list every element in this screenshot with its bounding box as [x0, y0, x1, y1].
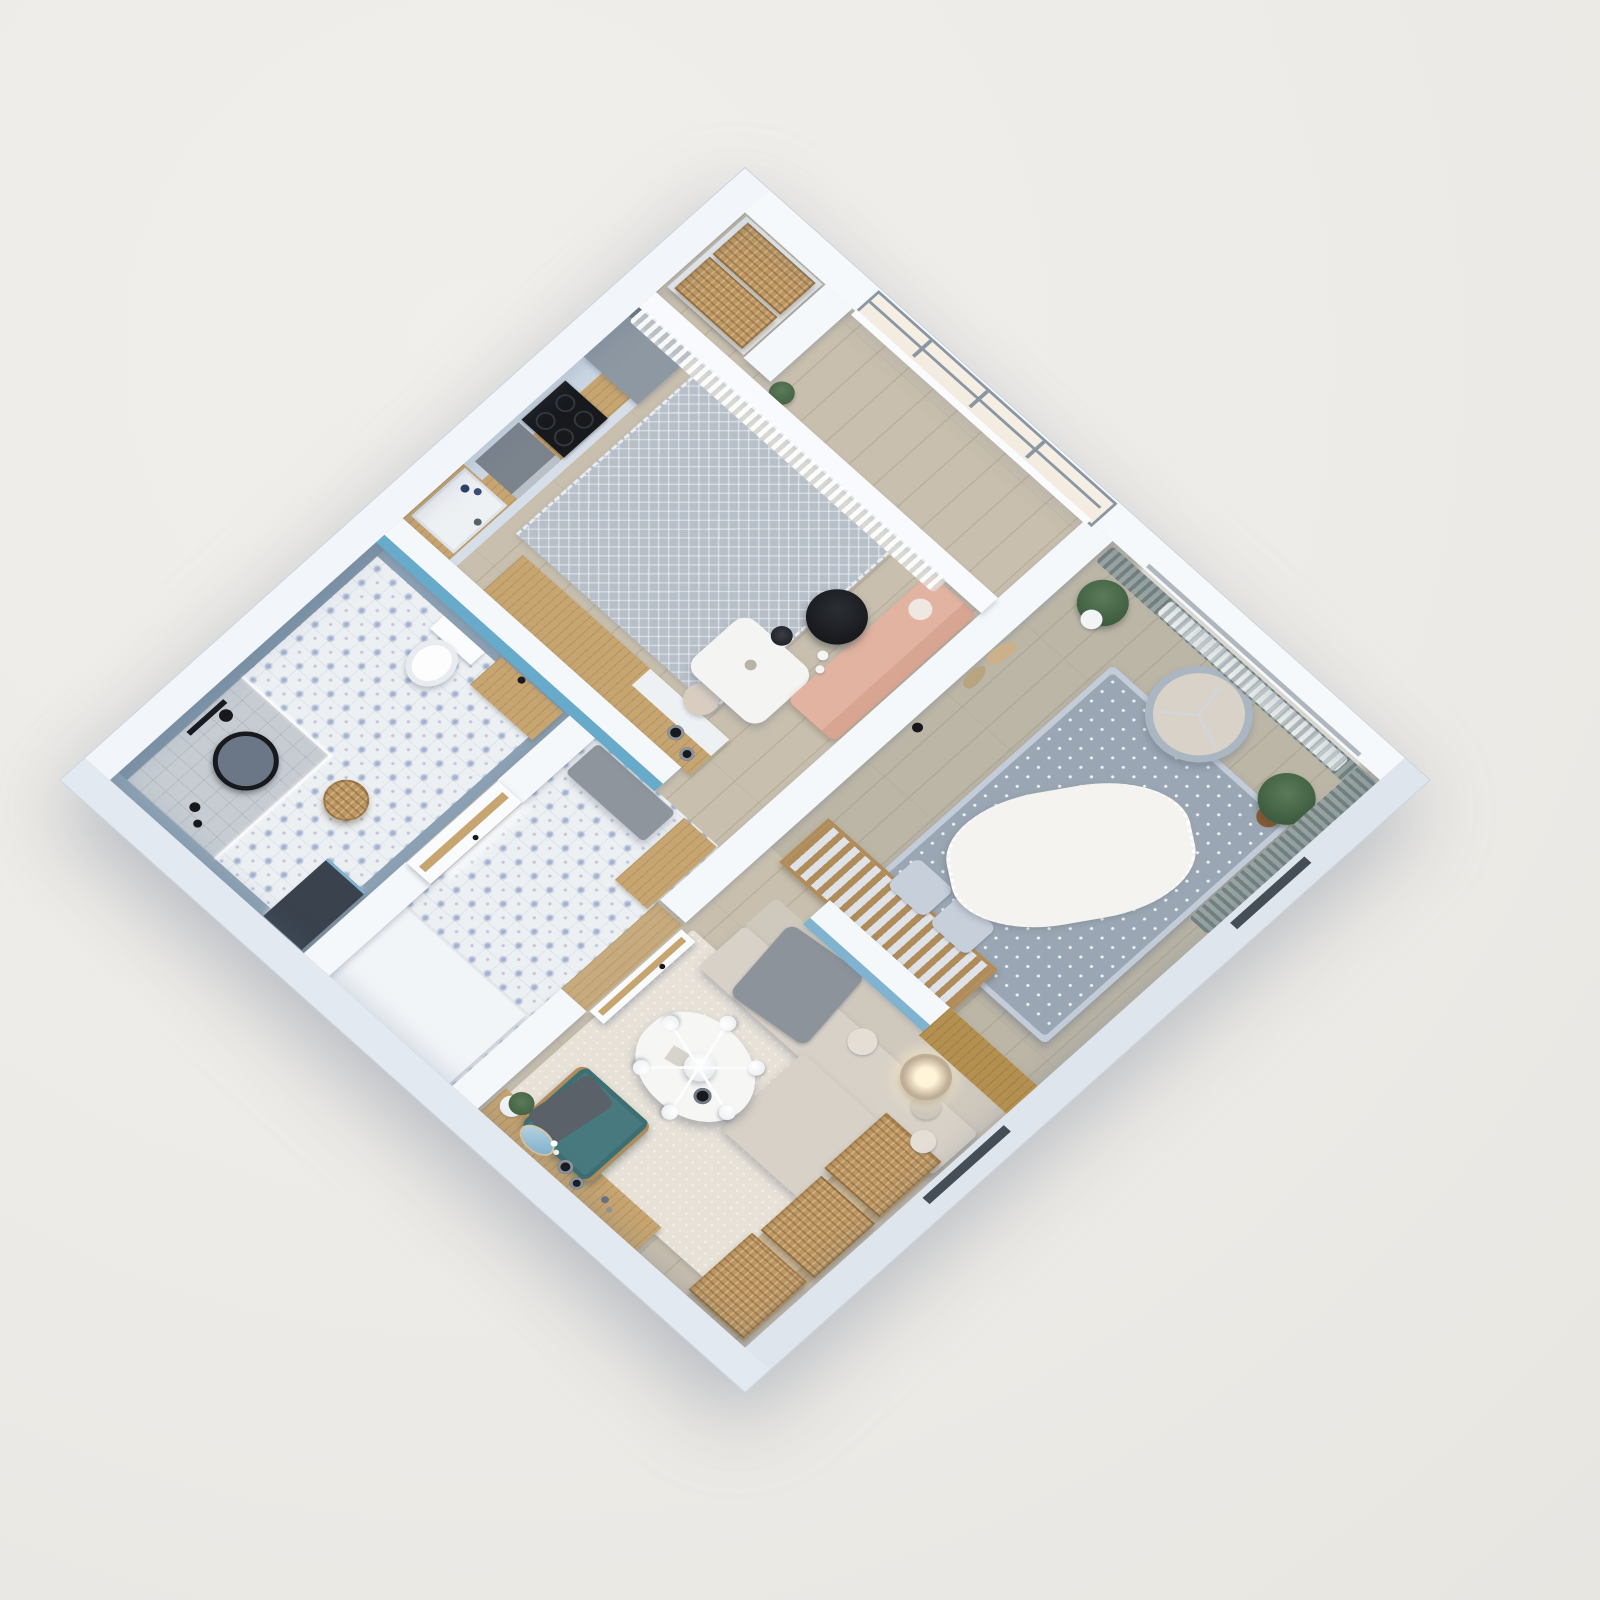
- plan-outline: [59, 167, 1431, 1393]
- floorplan-scene: [0, 0, 1600, 1600]
- plan-shadow-wrap: [0, 0, 1600, 1600]
- apartment-plan: [59, 167, 1431, 1393]
